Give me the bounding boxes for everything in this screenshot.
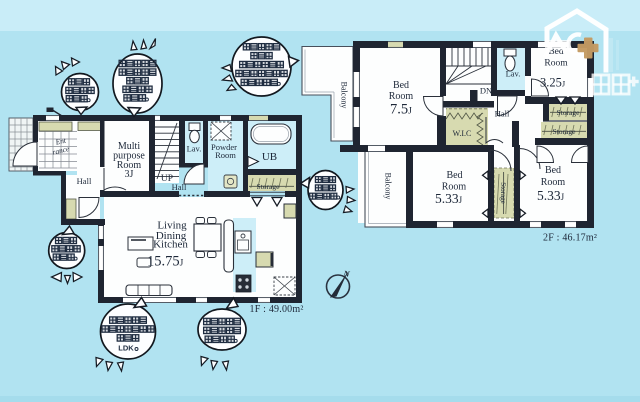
svg-text:1F : 49.00m²: 1F : 49.00m² <box>250 304 304 315</box>
svg-text:Storage: Storage <box>499 182 507 203</box>
svg-text:Room: Room <box>389 91 414 102</box>
svg-text:Hall: Hall <box>172 182 187 192</box>
svg-text:Balcony: Balcony <box>384 173 393 200</box>
svg-text:5.33J: 5.33J <box>537 188 565 203</box>
svg-text:5.33J: 5.33J <box>435 191 463 206</box>
svg-text:Storage: Storage <box>553 127 577 136</box>
svg-text:Storage: Storage <box>557 108 581 117</box>
svg-text:Room: Room <box>544 59 568 69</box>
svg-text:Bed: Bed <box>446 170 462 181</box>
svg-text:LDK: LDK <box>118 344 134 353</box>
svg-text:Storage: Storage <box>257 182 281 191</box>
svg-text:2F : 46.17m²: 2F : 46.17m² <box>543 233 597 244</box>
svg-text:Room: Room <box>541 177 566 188</box>
svg-text:Hall: Hall <box>77 176 92 186</box>
svg-text:Bed: Bed <box>393 80 409 91</box>
svg-text:Kitchen: Kitchen <box>153 239 188 251</box>
svg-text:Lav.: Lav. <box>187 144 202 154</box>
svg-text:W.I.C: W.I.C <box>453 129 472 138</box>
svg-text:DN: DN <box>480 86 492 96</box>
svg-text:Lav.: Lav. <box>506 69 521 79</box>
svg-text:15.75J: 15.75J <box>147 254 184 270</box>
svg-text:Bed: Bed <box>545 165 561 176</box>
svg-text:Hall: Hall <box>495 109 510 119</box>
svg-text:UB: UB <box>262 151 277 163</box>
svg-text:3J: 3J <box>125 169 134 180</box>
svg-text:Room: Room <box>215 150 236 160</box>
svg-text:Balcony: Balcony <box>340 82 349 109</box>
svg-text:3.25J: 3.25J <box>540 76 566 90</box>
